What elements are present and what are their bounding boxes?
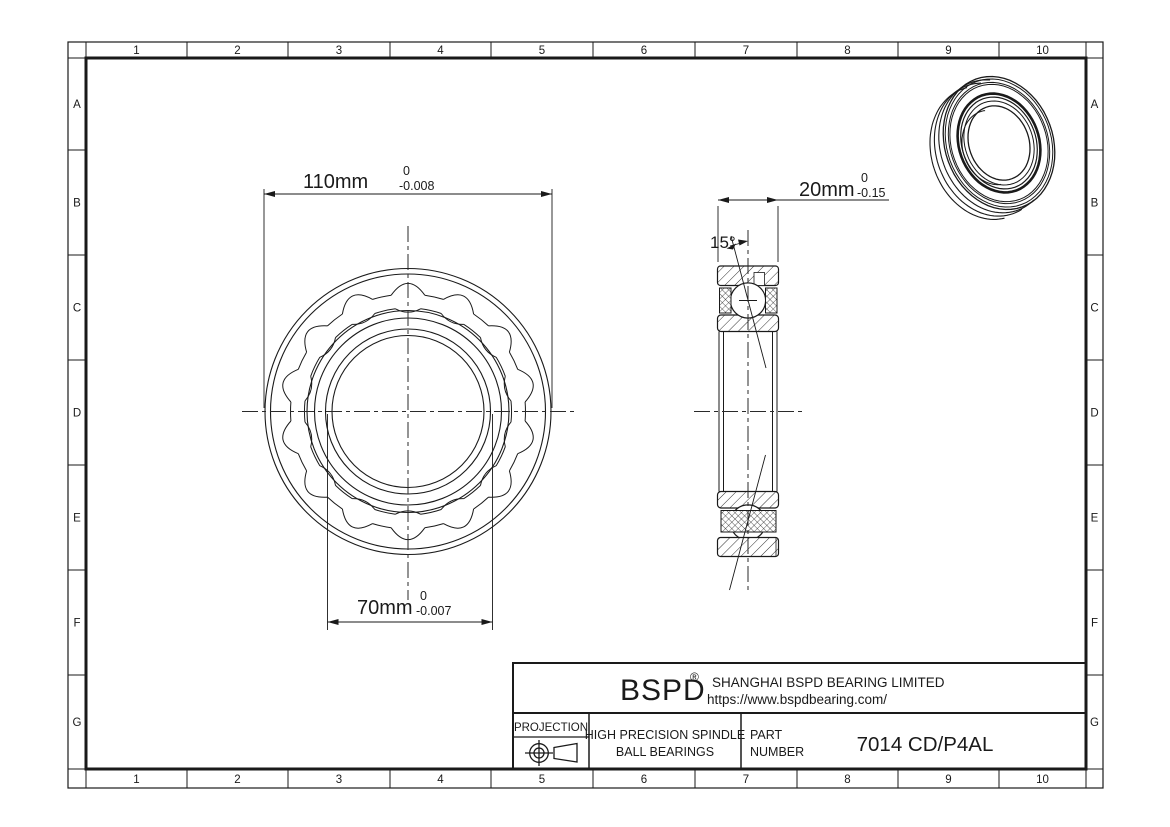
grid-column-label-top: 2 (234, 45, 240, 57)
isometric-view (930, 77, 1055, 220)
grid-row-label-right: D (1090, 408, 1098, 420)
grid-column-label-bottom: 8 (844, 774, 850, 786)
grid-row-label-right: C (1090, 303, 1098, 315)
company-website: https://www.bspdbearing.com/ (707, 692, 887, 707)
iso-face-ring (943, 77, 1055, 210)
dimension-bore-diameter: 70mm 0 -0.007 (328, 414, 493, 630)
iso-face-ring (968, 106, 1030, 180)
outer-diameter-tol-lower: -0.008 (399, 179, 434, 193)
grid-row-label-right: G (1090, 717, 1099, 729)
width-tol-lower: -0.15 (857, 186, 886, 200)
grid-column-label-bottom: 2 (234, 774, 240, 786)
section-view: 20mm 0 -0.15 15° (694, 171, 889, 594)
arrowhead-left (328, 619, 339, 625)
dimension-width: 20mm 0 -0.15 (718, 171, 889, 262)
registered-mark: ® (690, 670, 699, 684)
grid-row-label-left: G (73, 717, 82, 729)
company-name: SHANGHAI BSPD BEARING LIMITED (712, 675, 945, 690)
grid-column-label-top: 4 (437, 45, 444, 57)
iso-face-ring (948, 82, 1049, 203)
grid-column-label-bottom: 10 (1036, 774, 1049, 786)
outer-diameter-value: 110mm (303, 171, 368, 193)
width-tol-upper: 0 (861, 171, 868, 185)
product-title-line2: BALL BEARINGS (616, 745, 714, 759)
arrowhead-right (541, 191, 552, 197)
part-number: 7014 CD/P4AL (857, 733, 994, 756)
grid-row-label-left: B (73, 198, 81, 210)
grid-column-label-bottom: 3 (336, 774, 342, 786)
grid-column-label-top: 1 (133, 45, 139, 57)
drawing-sheet: 1122334455667788991010AABBCCDDEEFFGG BSP… (0, 0, 1170, 827)
engineering-drawing: 1122334455667788991010AABBCCDDEEFFGG BSP… (0, 0, 1170, 827)
grid-column-label-bottom: 4 (437, 774, 444, 786)
bore-diameter-value: 70mm (357, 597, 413, 619)
iso-bore-depth-arc (962, 111, 1001, 185)
grid-column-label-bottom: 6 (641, 774, 647, 786)
width-value: 20mm (799, 179, 855, 201)
grid-row-label-right: E (1091, 513, 1099, 525)
grid-column-label-bottom: 9 (945, 774, 951, 786)
bore-diameter-tol-lower: -0.007 (416, 604, 451, 618)
arrowhead-left (264, 191, 275, 197)
grid-column-label-top: 6 (641, 45, 647, 57)
arrowhead-right (482, 619, 493, 625)
part-label-line1: PART (750, 728, 783, 742)
grid-column-label-top: 10 (1036, 45, 1049, 57)
grid-column-label-top: 9 (945, 45, 951, 57)
grid-row-label-left: F (73, 618, 80, 630)
angle-arrowhead-right (738, 240, 748, 246)
arrowhead-right (767, 197, 778, 203)
grid-column-label-top: 5 (539, 45, 545, 57)
projection-symbol-icon (525, 740, 577, 766)
front-view-centerlines (242, 226, 574, 600)
grid-row-label-left: D (73, 408, 81, 420)
grid-column-label-bottom: 7 (743, 774, 749, 786)
grid-column-label-top: 3 (336, 45, 342, 57)
part-label-line2: NUMBER (750, 745, 804, 759)
grid-row-label-left: E (73, 513, 81, 525)
grid-row-label-right: A (1091, 99, 1099, 111)
arrowhead-left (718, 197, 729, 203)
front-view: 110mm 0 -0.008 70mm 0 -0.007 (242, 164, 574, 630)
product-title-line1: HIGH PRECISION SPINDLE (585, 728, 745, 742)
grid-column-label-bottom: 1 (133, 774, 139, 786)
grid-column-label-bottom: 5 (539, 774, 545, 786)
grid-row-label-right: B (1091, 198, 1099, 210)
contact-angle-annotation: 15° (710, 233, 748, 252)
snap-ring-groove (754, 273, 765, 286)
grid-row-label-left: C (73, 303, 81, 315)
bore-diameter-tol-upper: 0 (420, 589, 427, 603)
grid-column-label-top: 7 (743, 45, 749, 57)
title-block: BSPD ® SHANGHAI BSPD BEARING LIMITED htt… (513, 663, 1086, 769)
grid-row-label-left: A (73, 99, 81, 111)
outer-diameter-tol-upper: 0 (403, 164, 410, 178)
projection-label: PROJECTION (514, 722, 588, 734)
grid-column-label-top: 8 (844, 45, 850, 57)
grid-row-label-right: F (1091, 618, 1098, 630)
